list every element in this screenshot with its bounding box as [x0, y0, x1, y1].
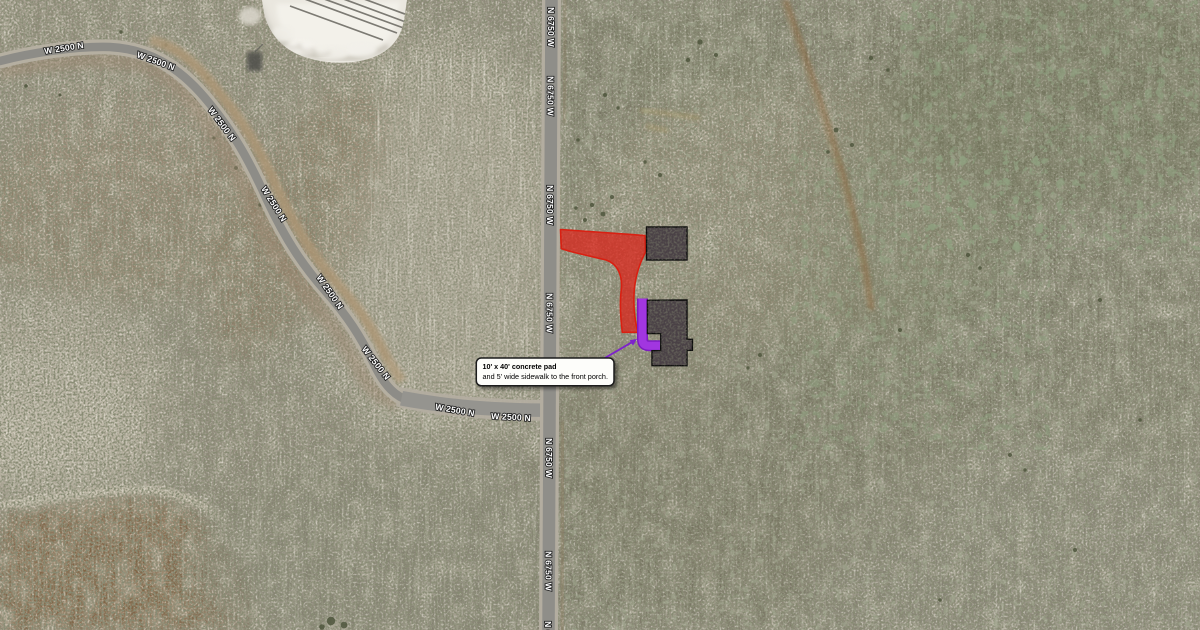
svg-text:N 6750 W: N 6750 W [543, 621, 553, 630]
svg-text:N 6750 W: N 6750 W [545, 293, 555, 333]
svg-text:10' x 40' concrete pad: 10' x 40' concrete pad [483, 362, 557, 371]
svg-text:N 6750 W: N 6750 W [546, 76, 556, 116]
svg-text:N 6750 W: N 6750 W [544, 551, 554, 591]
svg-text:N 6750 W: N 6750 W [544, 438, 554, 478]
svg-text:and 5' wide sidewalk to the fr: and 5' wide sidewalk to the front porch. [483, 372, 609, 381]
svg-text:W 2500 N: W 2500 N [491, 411, 531, 423]
svg-text:N 6750 W: N 6750 W [545, 185, 555, 225]
svg-text:N 6750 W: N 6750 W [546, 7, 556, 47]
